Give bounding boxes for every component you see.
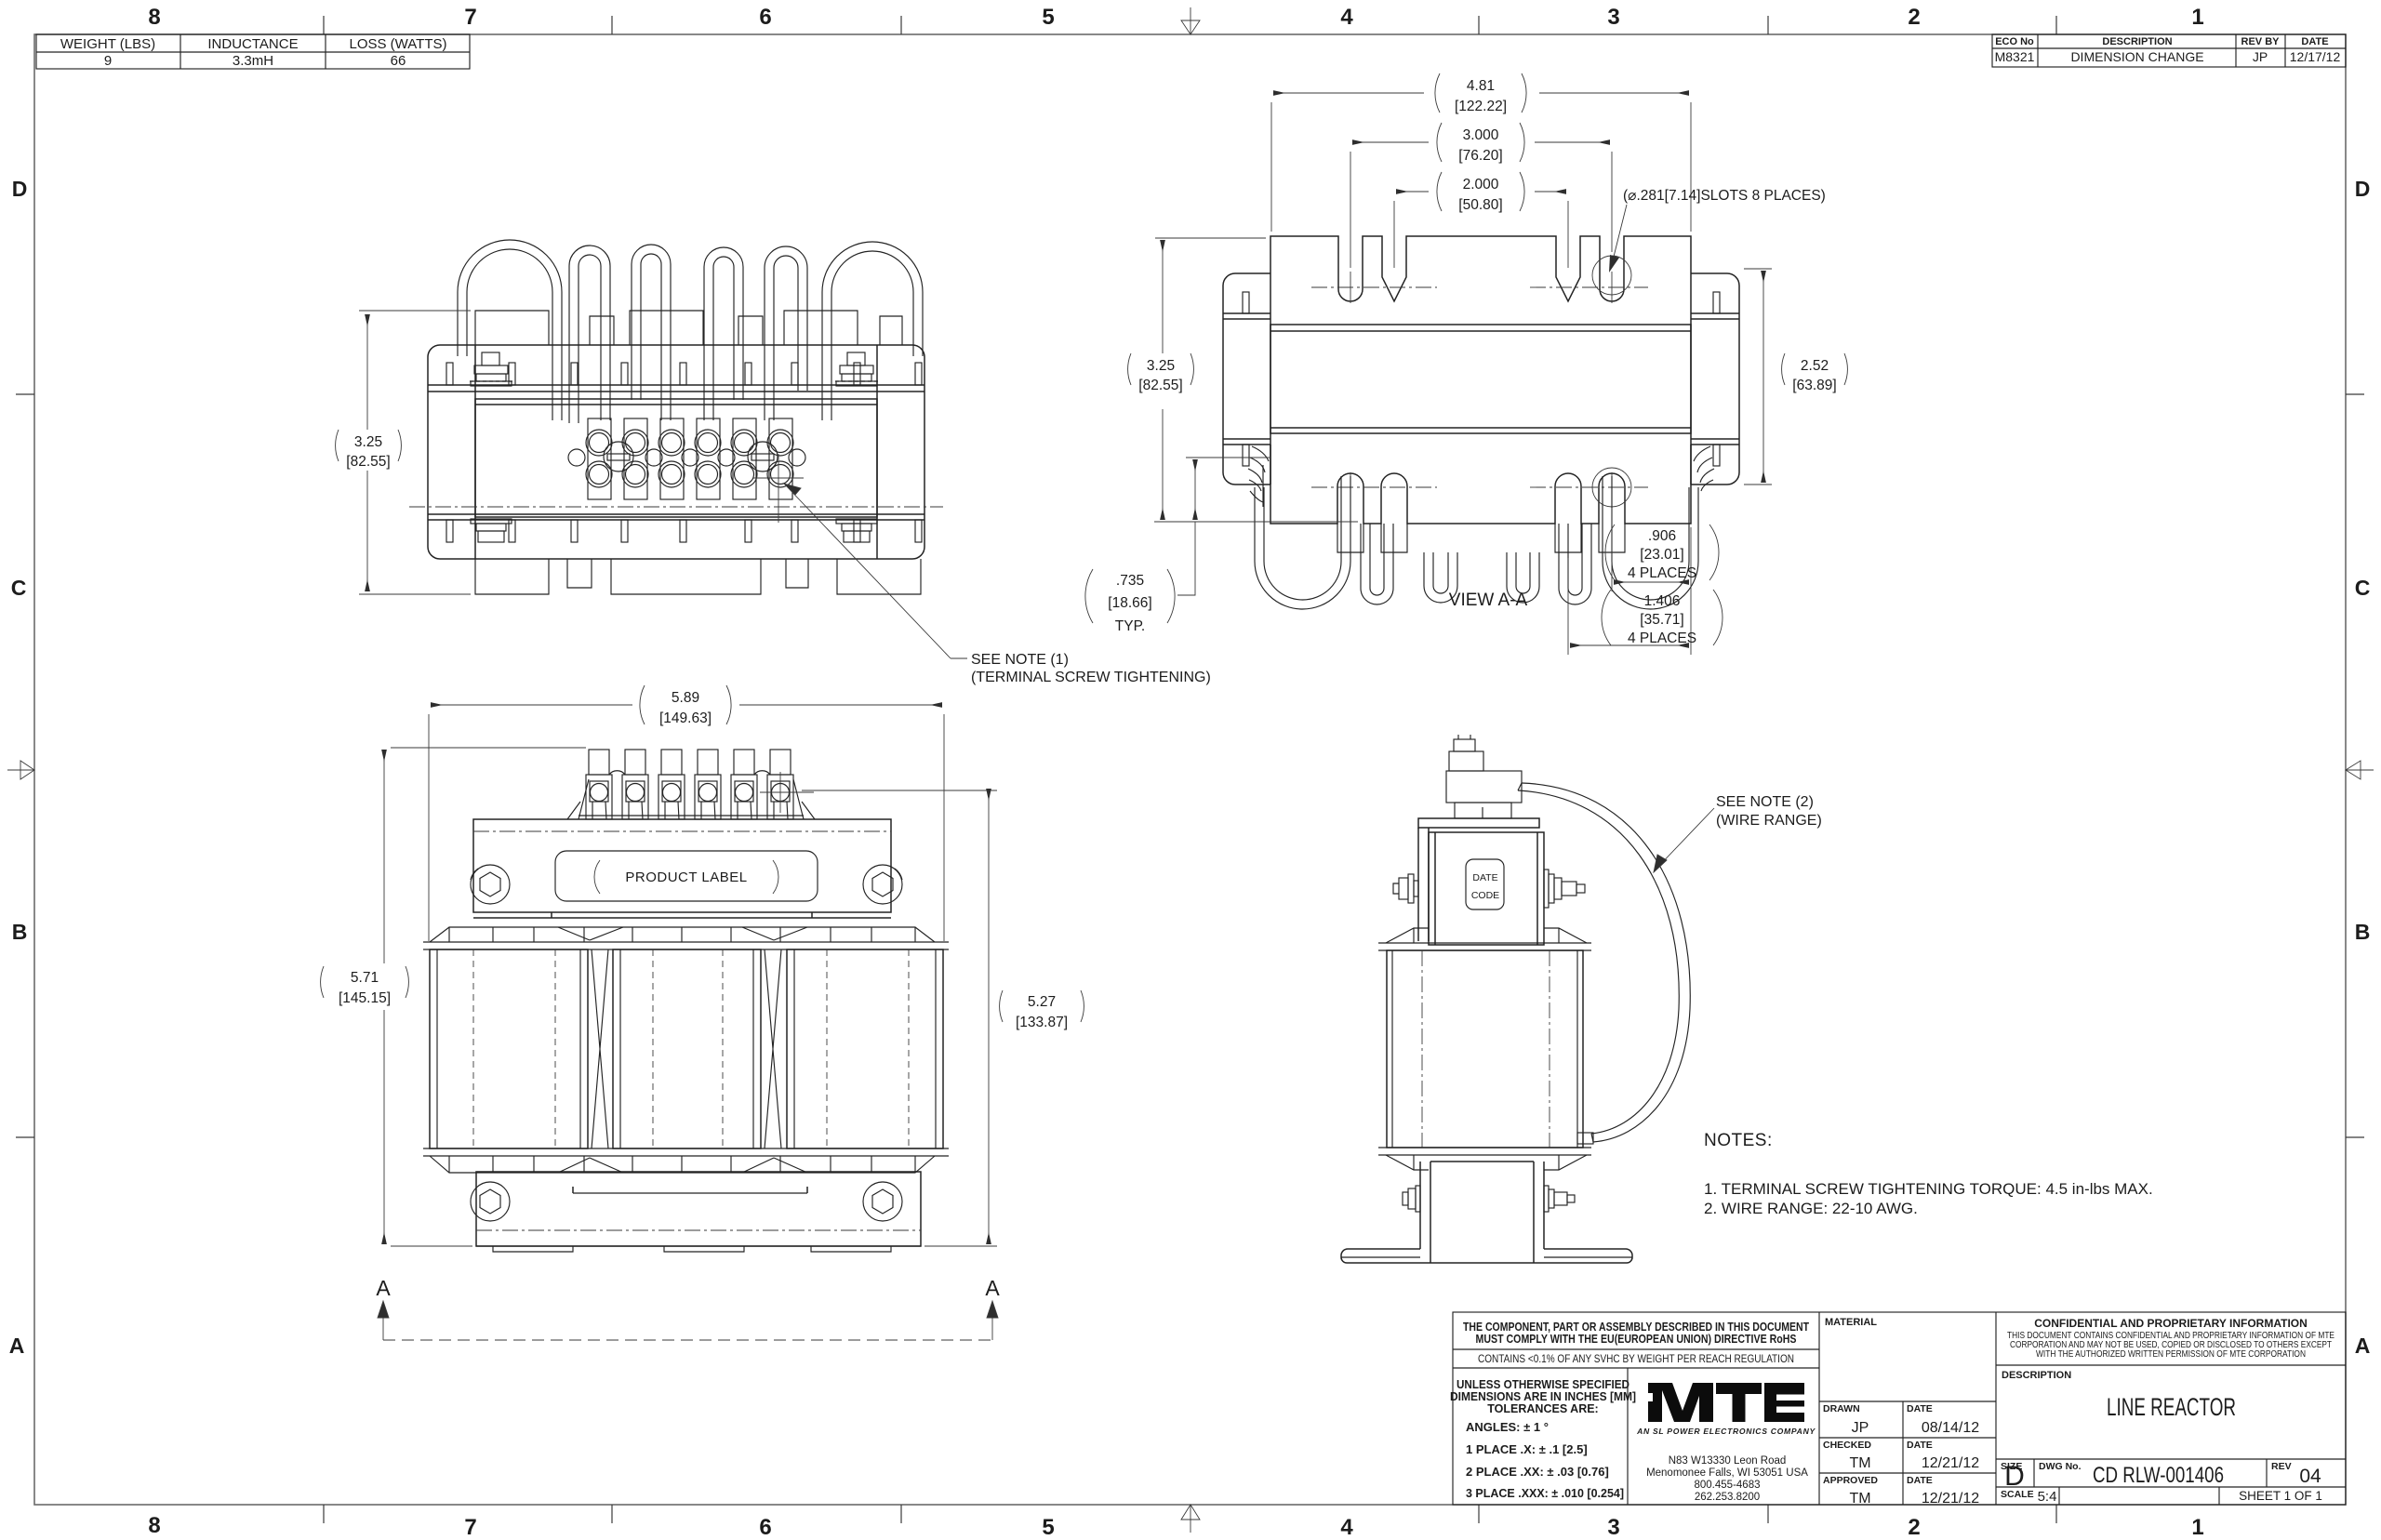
- svg-text:[35.71]: [35.71]: [1640, 612, 1683, 628]
- svg-text:A: A: [2355, 1334, 2371, 1358]
- svg-text:REV BY: REV BY: [2241, 36, 2281, 47]
- svg-text:7: 7: [464, 1515, 476, 1540]
- svg-text:2: 2: [1908, 5, 1920, 30]
- svg-text:MUST COMPLY WITH THE EU(EUROPE: MUST COMPLY WITH THE EU(EUROPEAN UNION) …: [1476, 1333, 1797, 1346]
- svg-text:DRAWN: DRAWN: [1823, 1403, 1860, 1414]
- svg-text:M8321: M8321: [1995, 49, 2035, 64]
- svg-text:08/14/12: 08/14/12: [1922, 1420, 1979, 1436]
- svg-text:UNLESS OTHERWISE SPECIFIED: UNLESS OTHERWISE SPECIFIED: [1457, 1378, 1629, 1391]
- svg-text:NOTES:: NOTES:: [1704, 1131, 1773, 1150]
- svg-text:VIEW A-A: VIEW A-A: [1449, 591, 1528, 610]
- svg-text:(⌀.281[7.14]SLOTS 8 PLACES): (⌀.281[7.14]SLOTS 8 PLACES): [1623, 188, 1826, 204]
- svg-text:(WIRE RANGE): (WIRE RANGE): [1716, 813, 1822, 829]
- svg-text:4: 4: [1340, 1515, 1353, 1540]
- svg-text:12/21/12: 12/21/12: [1922, 1455, 1979, 1471]
- svg-text:DATE: DATE: [1907, 1475, 1933, 1486]
- svg-text:[82.55]: [82.55]: [1138, 378, 1182, 393]
- svg-text:66: 66: [391, 53, 406, 69]
- svg-text:9: 9: [104, 53, 112, 69]
- svg-text:DESCRIPTION: DESCRIPTION: [2102, 36, 2172, 47]
- svg-text:[82.55]: [82.55]: [346, 454, 390, 470]
- svg-text:6: 6: [759, 5, 771, 30]
- svg-text:CODE: CODE: [1471, 890, 1499, 901]
- svg-text:SCALE: SCALE: [2001, 1489, 2034, 1500]
- svg-text:[149.63]: [149.63]: [659, 710, 712, 726]
- svg-text:2: 2: [1908, 1515, 1920, 1540]
- svg-text:DATE: DATE: [1907, 1440, 1933, 1451]
- svg-text:DWG No.: DWG No.: [2039, 1461, 2082, 1472]
- svg-text:C: C: [11, 576, 27, 600]
- svg-text:5.27: 5.27: [1028, 994, 1056, 1010]
- svg-text:A: A: [376, 1276, 391, 1300]
- svg-text:ECO No: ECO No: [1995, 36, 2034, 47]
- svg-text:WITH THE AUTHORIZED WRITTEN PE: WITH THE AUTHORIZED WRITTEN PERMISSION O…: [2036, 1349, 2306, 1360]
- svg-text:TYP.: TYP.: [1115, 618, 1145, 634]
- svg-text:B: B: [2355, 920, 2371, 944]
- svg-text:TM: TM: [1849, 1455, 1870, 1471]
- svg-text:CONFIDENTIAL AND PROPRIETARY I: CONFIDENTIAL AND PROPRIETARY INFORMATION: [2034, 1317, 2308, 1330]
- svg-text:[50.80]: [50.80]: [1458, 197, 1502, 213]
- svg-text:8: 8: [148, 5, 160, 30]
- svg-text:DATE: DATE: [1472, 872, 1497, 883]
- svg-text:B: B: [12, 920, 28, 944]
- svg-text:THE COMPONENT, PART OR ASSEMBL: THE COMPONENT, PART OR ASSEMBLY DESCRIBE…: [1463, 1321, 1809, 1334]
- svg-text:ANGLES: ± 1 °: ANGLES: ± 1 °: [1466, 1420, 1549, 1434]
- svg-text:2.52: 2.52: [1801, 358, 1829, 374]
- svg-text:5.89: 5.89: [672, 690, 699, 706]
- svg-text:5:4: 5:4: [2038, 1489, 2057, 1505]
- svg-text:2.000: 2.000: [1463, 177, 1499, 192]
- svg-text:DESCRIPTION: DESCRIPTION: [2002, 1370, 2071, 1381]
- svg-text:PRODUCT LABEL: PRODUCT LABEL: [625, 870, 747, 885]
- svg-text:5: 5: [1042, 1515, 1054, 1540]
- svg-text:D: D: [12, 177, 28, 201]
- svg-text:TOLERANCES ARE:: TOLERANCES ARE:: [1487, 1402, 1598, 1415]
- svg-text:12/21/12: 12/21/12: [1922, 1491, 1979, 1507]
- svg-text:[23.01]: [23.01]: [1640, 547, 1683, 563]
- svg-text:3 PLACE .XXX: ± .010 [0.254]: 3 PLACE .XXX: ± .010 [0.254]: [1466, 1486, 1624, 1500]
- svg-text:C: C: [2355, 576, 2371, 600]
- svg-text:DATE: DATE: [1907, 1403, 1933, 1414]
- svg-text:(TERMINAL SCREW TIGHTENING): (TERMINAL SCREW TIGHTENING): [971, 670, 1211, 685]
- svg-text:JP: JP: [1852, 1420, 1869, 1436]
- svg-text:4: 4: [1340, 5, 1353, 30]
- svg-text:.735: .735: [1116, 573, 1144, 589]
- svg-text:REV: REV: [2271, 1461, 2292, 1472]
- svg-text:4 PLACES: 4 PLACES: [1628, 565, 1696, 581]
- svg-text:LOSS (WATTS): LOSS (WATTS): [350, 36, 447, 52]
- svg-text:800.455-4683: 800.455-4683: [1695, 1480, 1761, 1491]
- svg-text:6: 6: [759, 1515, 771, 1540]
- svg-text:Menomonee Falls, WI 53051 USA: Menomonee Falls, WI 53051 USA: [1646, 1467, 1808, 1479]
- svg-text:D: D: [2004, 1461, 2025, 1492]
- svg-text:3.25: 3.25: [354, 434, 382, 450]
- svg-text:DATE: DATE: [2301, 36, 2328, 47]
- svg-text:12/17/12: 12/17/12: [2290, 49, 2341, 64]
- svg-text:WEIGHT (LBS): WEIGHT (LBS): [60, 36, 155, 52]
- svg-text:5.71: 5.71: [351, 970, 379, 986]
- svg-text:[145.15]: [145.15]: [339, 990, 391, 1006]
- svg-text:8: 8: [148, 1513, 160, 1538]
- svg-text:TM: TM: [1849, 1491, 1870, 1507]
- svg-text:[122.22]: [122.22]: [1455, 99, 1507, 114]
- svg-text:04: 04: [2299, 1466, 2321, 1487]
- svg-text:SHEET 1 OF 1: SHEET 1 OF 1: [2239, 1489, 2322, 1503]
- svg-text:APPROVED: APPROVED: [1823, 1475, 1878, 1486]
- svg-text:7: 7: [464, 5, 476, 30]
- svg-text:MATERIAL: MATERIAL: [1825, 1317, 1877, 1328]
- svg-text:SEE NOTE (2): SEE NOTE (2): [1716, 794, 1814, 810]
- svg-text:262.253.8200: 262.253.8200: [1695, 1492, 1760, 1503]
- svg-text:SEE NOTE (1): SEE NOTE (1): [971, 652, 1069, 668]
- svg-text:JP: JP: [2253, 49, 2268, 64]
- svg-text:1: 1: [2191, 1515, 2203, 1540]
- svg-text:.906: .906: [1648, 528, 1676, 544]
- svg-text:4.81: 4.81: [1467, 78, 1495, 94]
- svg-text:LINE REACTOR: LINE REACTOR: [2107, 1393, 2236, 1421]
- svg-text:[63.89]: [63.89]: [1792, 378, 1836, 393]
- svg-text:N83 W13330 Leon Road: N83 W13330 Leon Road: [1669, 1455, 1787, 1467]
- svg-text:3.000: 3.000: [1463, 127, 1499, 143]
- svg-text:3: 3: [1607, 1515, 1619, 1540]
- svg-text:CD RLW-001406: CD RLW-001406: [2093, 1463, 2224, 1488]
- svg-text:1: 1: [2191, 5, 2203, 30]
- svg-text:AN SL POWER ELECTRONICS COMPAN: AN SL POWER ELECTRONICS COMPANY: [1636, 1427, 1816, 1436]
- svg-text:2 PLACE .XX: ± .03 [0.76]: 2 PLACE .XX: ± .03 [0.76]: [1466, 1465, 1609, 1479]
- svg-text:2. WIRE RANGE: 22-10 AWG.: 2. WIRE RANGE: 22-10 AWG.: [1704, 1200, 1918, 1217]
- svg-text:A: A: [9, 1334, 25, 1358]
- svg-text:DIMENSIONS ARE IN INCHES [MM]: DIMENSIONS ARE IN INCHES [MM]: [1450, 1390, 1636, 1403]
- svg-text:A: A: [985, 1276, 1000, 1300]
- svg-text:[76.20]: [76.20]: [1458, 148, 1502, 164]
- svg-text:3.25: 3.25: [1147, 358, 1175, 374]
- svg-text:4 PLACES: 4 PLACES: [1628, 631, 1696, 646]
- svg-text:[133.87]: [133.87]: [1016, 1015, 1068, 1030]
- svg-text:1 PLACE .X: ± .1 [2.5]: 1 PLACE .X: ± .1 [2.5]: [1466, 1442, 1588, 1456]
- svg-text:3: 3: [1607, 5, 1619, 30]
- svg-text:1.406: 1.406: [1644, 593, 1681, 609]
- svg-text:3.3mH: 3.3mH: [233, 53, 273, 69]
- svg-text:[18.66]: [18.66]: [1108, 595, 1151, 611]
- svg-text:INDUCTANCE: INDUCTANCE: [207, 36, 298, 52]
- svg-text:1. TERMINAL SCREW TIGHTENING: 1. TERMINAL SCREW TIGHTENING TORQUE: 4.5…: [1704, 1180, 2153, 1198]
- svg-text:CONTAINS <0.1% OF ANY SVHC BY: CONTAINS <0.1% OF ANY SVHC BY WEIGHT PER…: [1478, 1352, 1794, 1365]
- svg-text:DIMENSION CHANGE: DIMENSION CHANGE: [2070, 49, 2203, 64]
- svg-text:CHECKED: CHECKED: [1823, 1440, 1871, 1451]
- svg-text:D: D: [2355, 177, 2371, 201]
- svg-text:5: 5: [1042, 5, 1054, 30]
